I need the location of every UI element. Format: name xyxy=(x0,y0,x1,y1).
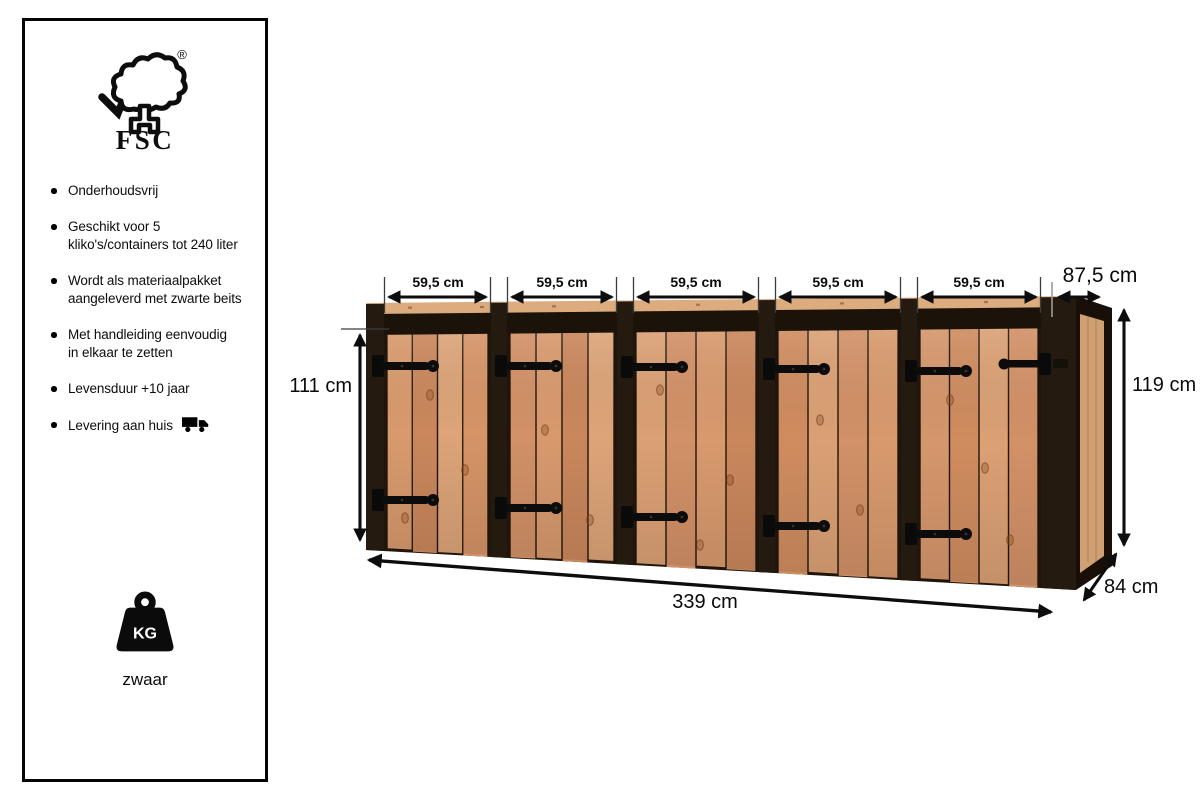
bin-storage-illustration xyxy=(0,0,1200,800)
dim-label-bay-2: 59,5 cm xyxy=(517,274,607,290)
dim-label-total-width: 339 cm xyxy=(650,591,760,614)
product-spec-sheet: ® FSC Onderhoudsvrij Geschikt voor 5 kli… xyxy=(0,0,1200,800)
dim-label-bay-5: 59,5 cm xyxy=(934,274,1024,290)
dim-label-top-depth: 87,5 cm xyxy=(1050,264,1150,288)
dim-label-bay-1: 59,5 cm xyxy=(393,274,483,290)
dim-label-depth: 84 cm xyxy=(1104,576,1158,599)
dim-label-bay-4: 59,5 cm xyxy=(793,274,883,290)
dim-label-total-height: 119 cm xyxy=(1132,374,1196,397)
cabinet-drawing xyxy=(366,296,1112,590)
dim-label-bay-3: 59,5 cm xyxy=(651,274,741,290)
dim-label-door-height: 111 cm xyxy=(280,375,352,398)
